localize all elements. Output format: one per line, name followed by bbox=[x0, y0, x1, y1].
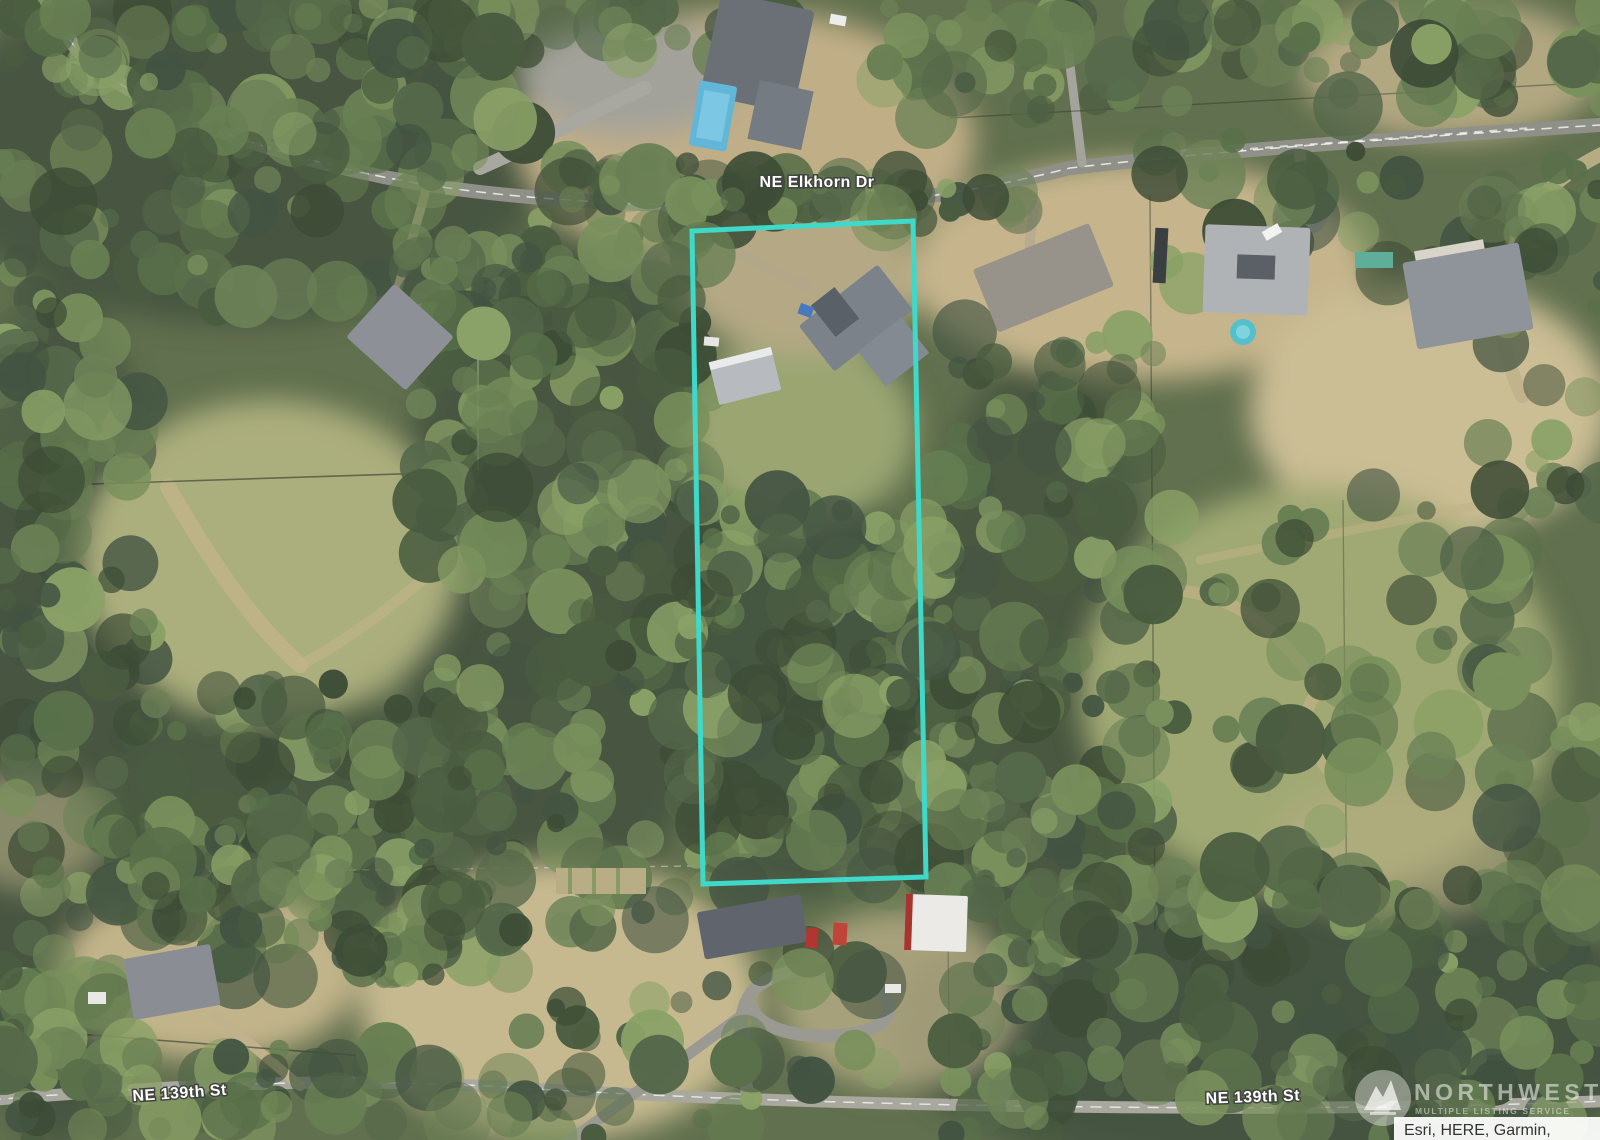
aerial-imagery[interactable]: NE Elkhorn Dr NE 139th St NE 139th St NO… bbox=[0, 0, 1600, 1140]
barn bbox=[904, 894, 968, 952]
satellite-map-view[interactable]: NE Elkhorn Dr NE 139th St NE 139th St NO… bbox=[0, 0, 1600, 1140]
attribution-text: Esri, HERE, Garmin, bbox=[1404, 1122, 1551, 1139]
watermark-title: NORTHWEST bbox=[1414, 1079, 1600, 1105]
map-attribution: Esri, HERE, Garmin, bbox=[1394, 1117, 1600, 1140]
road-label-ne-elkhorn-dr: NE Elkhorn Dr bbox=[760, 174, 875, 191]
watermark-subtitle: MULTIPLE LISTING SERVICE bbox=[1415, 1106, 1571, 1116]
road-label-ne-139th-st-right: NE 139th St bbox=[1205, 1087, 1300, 1107]
